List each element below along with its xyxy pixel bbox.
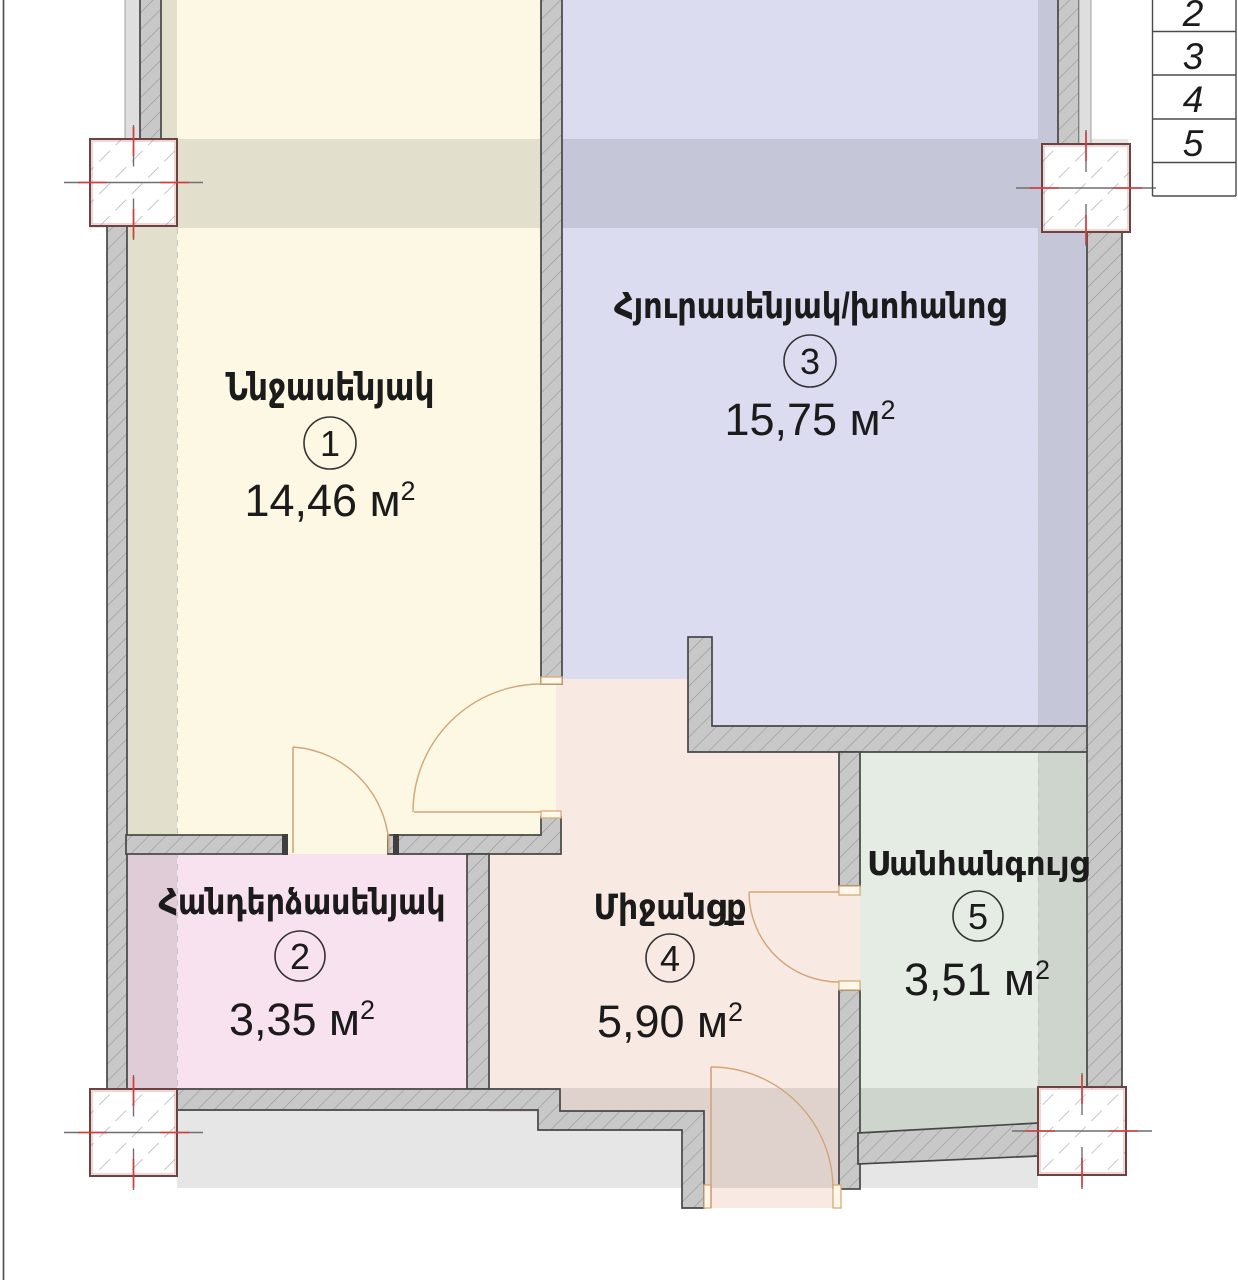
svg-text:15,75 м2: 15,75 м2 bbox=[724, 394, 895, 445]
svg-text:3: 3 bbox=[1183, 36, 1204, 77]
svg-text:Ննջասենյակ: Ննջասենյակ bbox=[226, 367, 435, 409]
svg-text:3,51 м2: 3,51 м2 bbox=[904, 954, 1050, 1005]
svg-text:4: 4 bbox=[660, 938, 680, 979]
svg-text:Հանդերձասենյակ: Հանդերձասենյակ bbox=[159, 881, 446, 922]
svg-text:Միջանցք: Միջանցք bbox=[594, 888, 747, 927]
svg-text:2: 2 bbox=[1182, 0, 1204, 34]
svg-text:Սանհանգույց: Սանհանգույց bbox=[867, 845, 1089, 882]
svg-text:5,90 м2: 5,90 м2 bbox=[597, 996, 743, 1047]
svg-text:5: 5 bbox=[968, 896, 988, 937]
svg-text:4: 4 bbox=[1183, 79, 1204, 120]
svg-text:14,46 м2: 14,46 м2 bbox=[244, 475, 415, 526]
svg-text:3,35 м2: 3,35 м2 bbox=[229, 994, 375, 1045]
svg-text:5: 5 bbox=[1183, 123, 1204, 164]
svg-text:Հյուրասենյակ/խոհանոց: Հյուրասենյակ/խոհանոց bbox=[614, 285, 1006, 326]
svg-text:2: 2 bbox=[290, 936, 310, 977]
svg-text:1: 1 bbox=[320, 423, 340, 464]
svg-text:3: 3 bbox=[800, 341, 820, 382]
